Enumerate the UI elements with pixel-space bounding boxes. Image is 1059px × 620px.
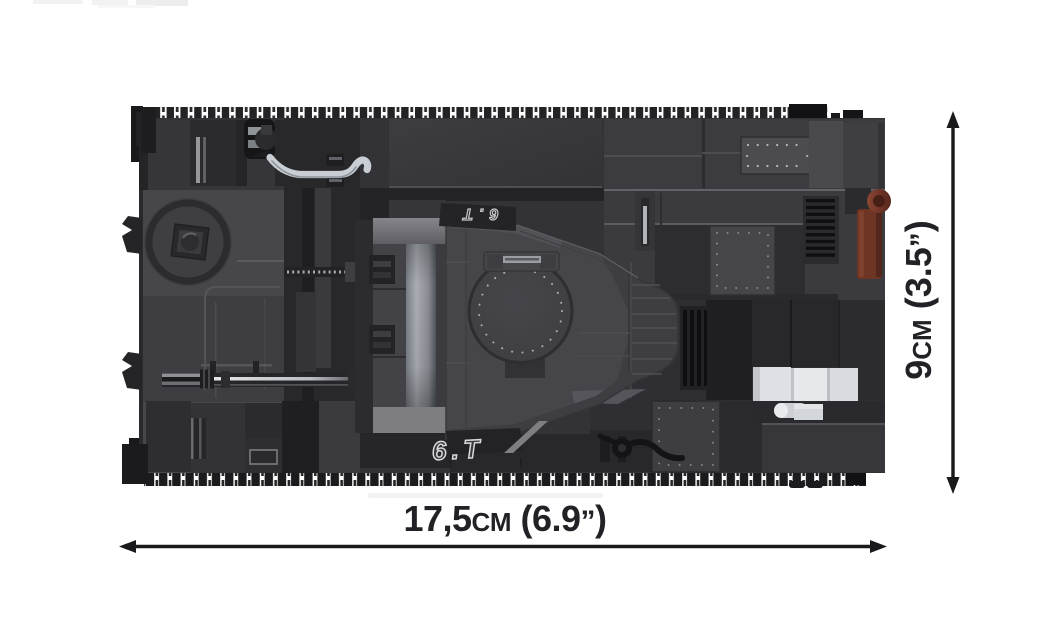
svg-text:6.T: 6.T	[431, 433, 485, 466]
svg-text:6.T: 6.T	[457, 205, 498, 222]
